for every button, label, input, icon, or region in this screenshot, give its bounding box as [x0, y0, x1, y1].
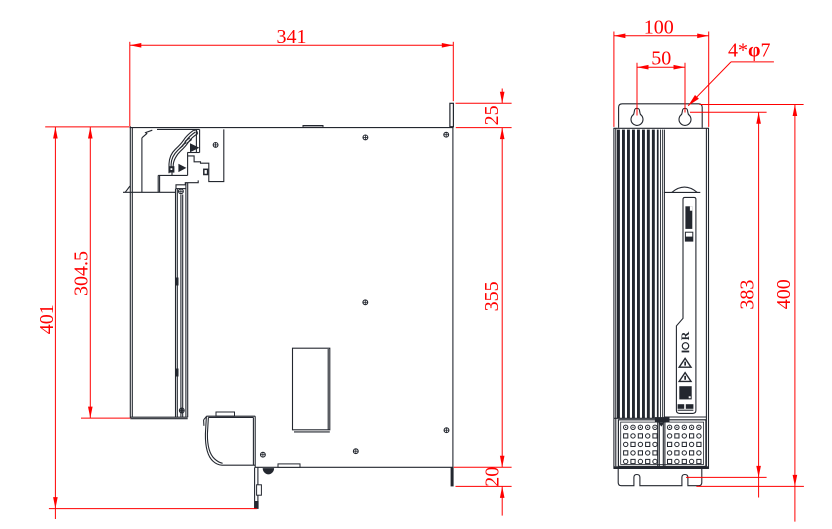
svg-text:355: 355 [481, 281, 503, 311]
svg-text:25: 25 [481, 105, 503, 125]
svg-text:304.5: 304.5 [71, 251, 93, 296]
svg-text:4*φ7: 4*φ7 [728, 40, 770, 62]
svg-text:400: 400 [773, 279, 795, 309]
svg-text:20: 20 [482, 467, 504, 487]
svg-text:341: 341 [277, 26, 307, 48]
svg-text:401: 401 [36, 304, 58, 334]
svg-text:50: 50 [651, 48, 671, 70]
svg-text:383: 383 [737, 280, 759, 310]
svg-text:100: 100 [644, 17, 674, 39]
svg-text:R: R [678, 331, 692, 340]
